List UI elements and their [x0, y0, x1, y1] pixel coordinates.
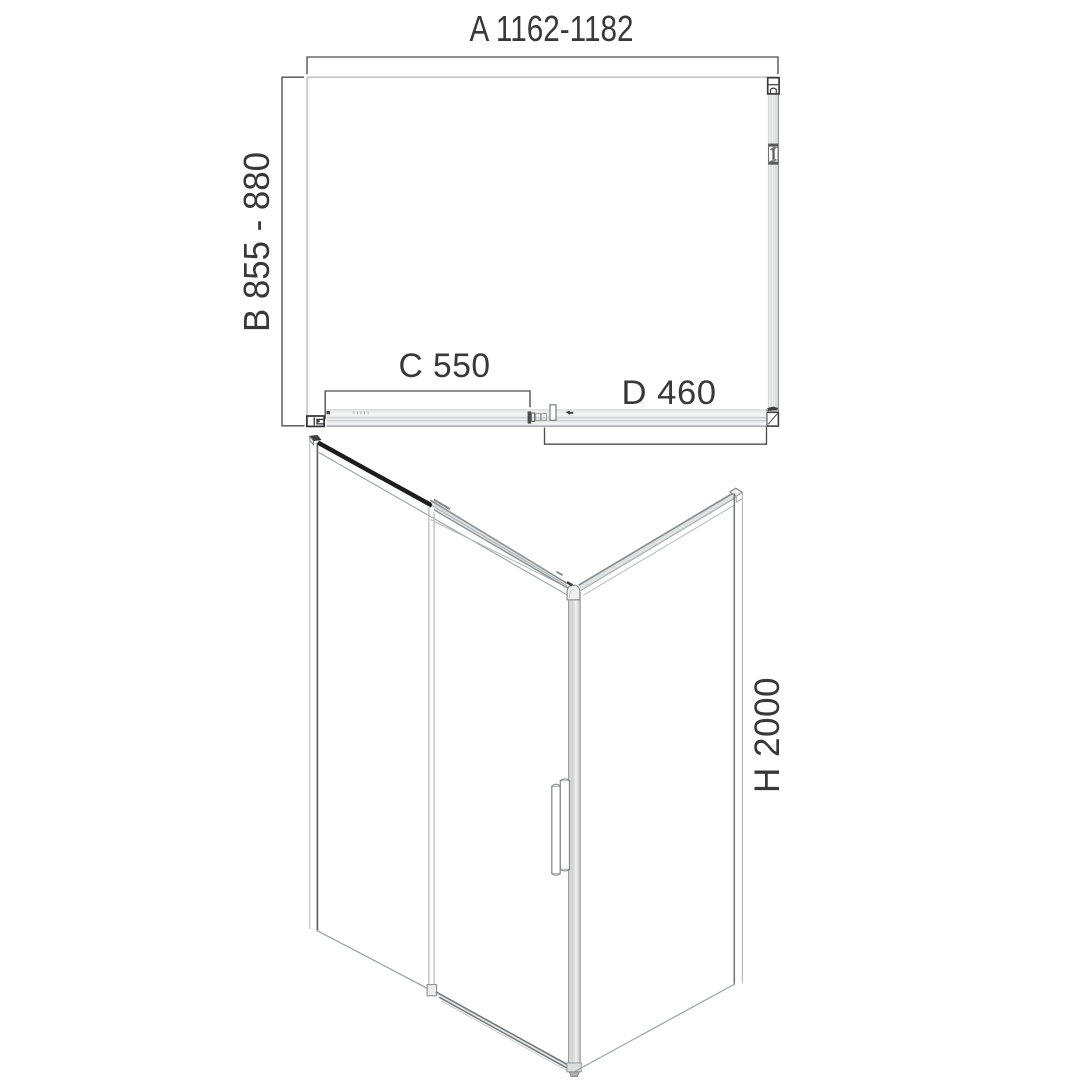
svg-text:H 2000: H 2000 — [748, 677, 787, 793]
svg-text:D 460: D 460 — [622, 374, 717, 412]
svg-text:A 1162-1182: A 1162-1182 — [470, 8, 634, 49]
svg-text:C 550: C 550 — [399, 347, 491, 385]
svg-text:B 855 - 880: B 855 - 880 — [236, 152, 277, 332]
